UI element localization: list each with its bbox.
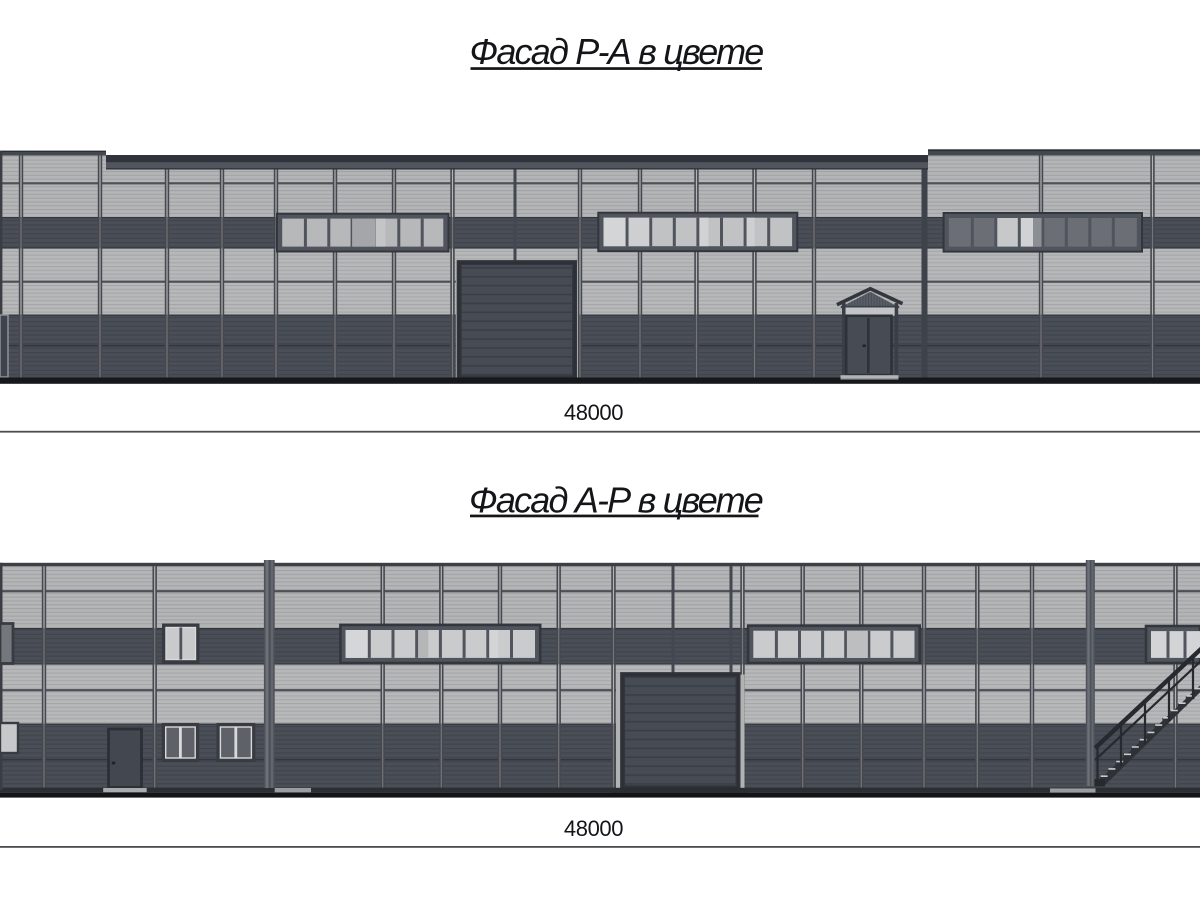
svg-text:48000: 48000 (564, 400, 623, 425)
svg-text:Фасад Р-А в цвете: Фасад Р-А в цвете (470, 31, 764, 72)
svg-text:Фасад А-Р в цвете: Фасад А-Р в цвете (469, 480, 763, 521)
svg-text:48000: 48000 (564, 816, 623, 841)
